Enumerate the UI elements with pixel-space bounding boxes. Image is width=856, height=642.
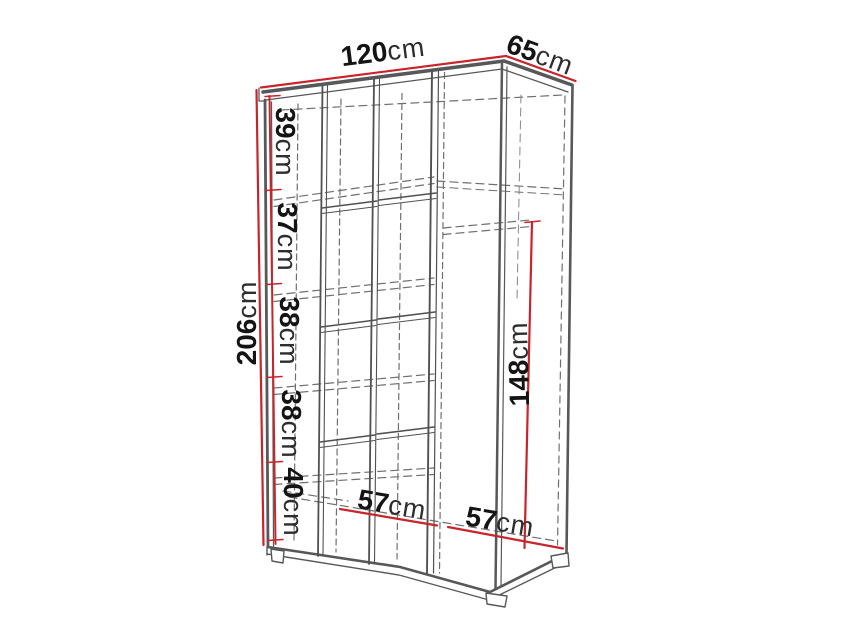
hanging-height-dimension-label: 148cm — [504, 321, 534, 406]
wardrobe-line-drawing — [0, 0, 856, 642]
shelf-gap-5-unit: cm — [278, 499, 308, 537]
shelf-gap-1-value: 39 — [270, 107, 301, 138]
shelf-gap-3-unit: cm — [274, 328, 304, 366]
shelf-gap-label-2: 37cm — [273, 202, 301, 271]
shelf-gap-2-value: 37 — [272, 202, 303, 233]
cabinet-feet — [271, 549, 569, 607]
hanging-height-value: 148 — [503, 359, 535, 407]
shelf-gap-label-3: 38cm — [275, 296, 303, 365]
right-section-width-unit: cm — [494, 507, 536, 543]
left-section-width-unit: cm — [386, 490, 428, 526]
shelf-gap-3-value: 38 — [274, 296, 305, 327]
shelf-gap-2-unit: cm — [272, 234, 302, 272]
shelf-gap-label-1: 39cm — [271, 107, 299, 176]
height-dimension-label: 206cm — [233, 281, 261, 366]
shelf-gap-label-5: 40cm — [279, 467, 307, 536]
shelf-gap-label-4: 38cm — [277, 389, 305, 458]
wardrobe-dimension-diagram: 120cm 65cm 206cm 39cm 37cm 38cm 38cm 40c… — [0, 0, 856, 642]
width-unit: cm — [385, 32, 427, 67]
shelf-gap-4-value: 38 — [276, 389, 307, 420]
height-unit: cm — [232, 281, 262, 319]
hanging-height-unit: cm — [503, 321, 534, 360]
shelf-gap-5-value: 40 — [278, 467, 309, 498]
shelf-gap-4-unit: cm — [276, 421, 306, 459]
height-value: 206 — [231, 319, 262, 366]
shelf-gap-1-unit: cm — [270, 139, 300, 177]
width-value: 120 — [339, 36, 389, 73]
